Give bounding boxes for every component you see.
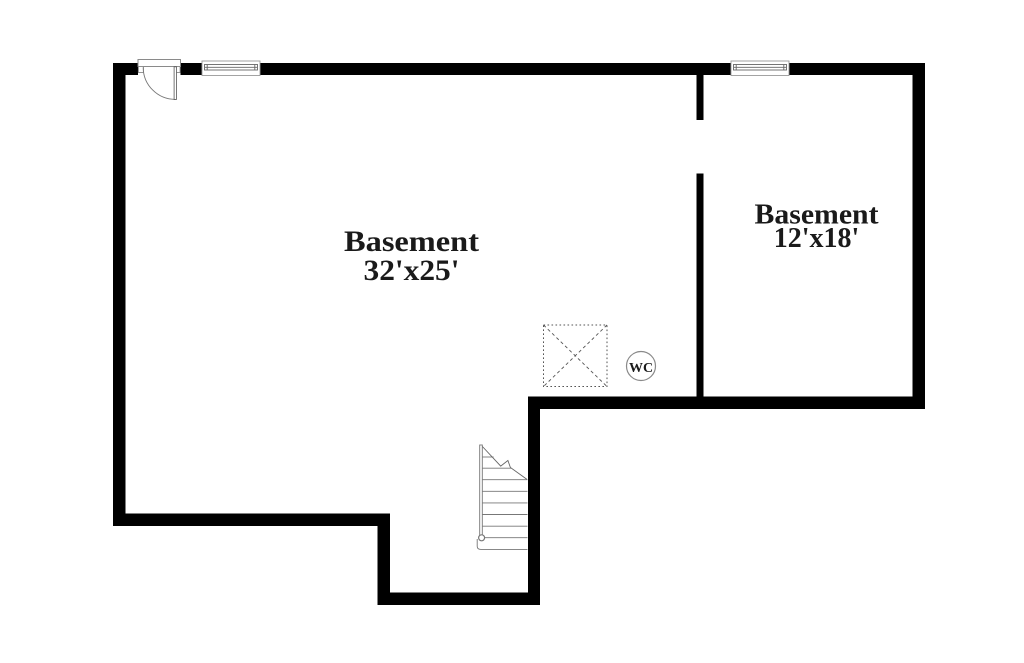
svg-text:WC: WC (629, 361, 653, 376)
svg-text:12'x18': 12'x18' (774, 223, 860, 254)
svg-text:32'x25': 32'x25' (364, 254, 460, 287)
